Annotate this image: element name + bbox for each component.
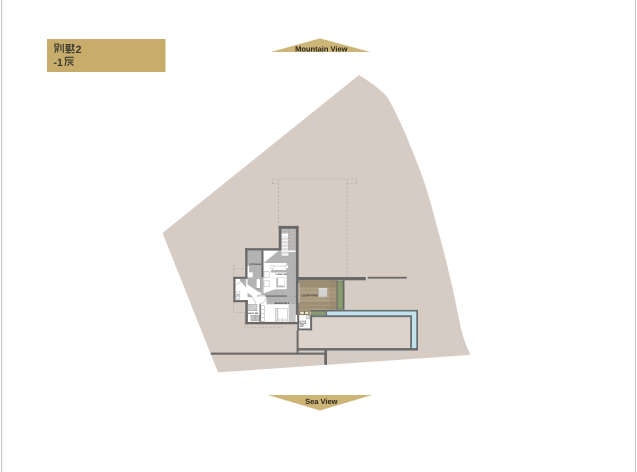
svg-text:-1: -1 <box>54 57 63 69</box>
svg-text:Sea View: Sea View <box>305 397 338 406</box>
svg-text:Mountain View: Mountain View <box>295 44 348 53</box>
svg-text:COURTYARD: COURTYARD <box>301 295 318 298</box>
svg-text:LIVING RM: LIVING RM <box>275 273 286 276</box>
svg-text:BEDROOM 2: BEDROOM 2 <box>275 302 290 305</box>
svg-text:BATH RM: BATH RM <box>248 312 258 315</box>
svg-text:2: 2 <box>76 44 82 56</box>
svg-text:STORAGE: STORAGE <box>249 263 261 266</box>
